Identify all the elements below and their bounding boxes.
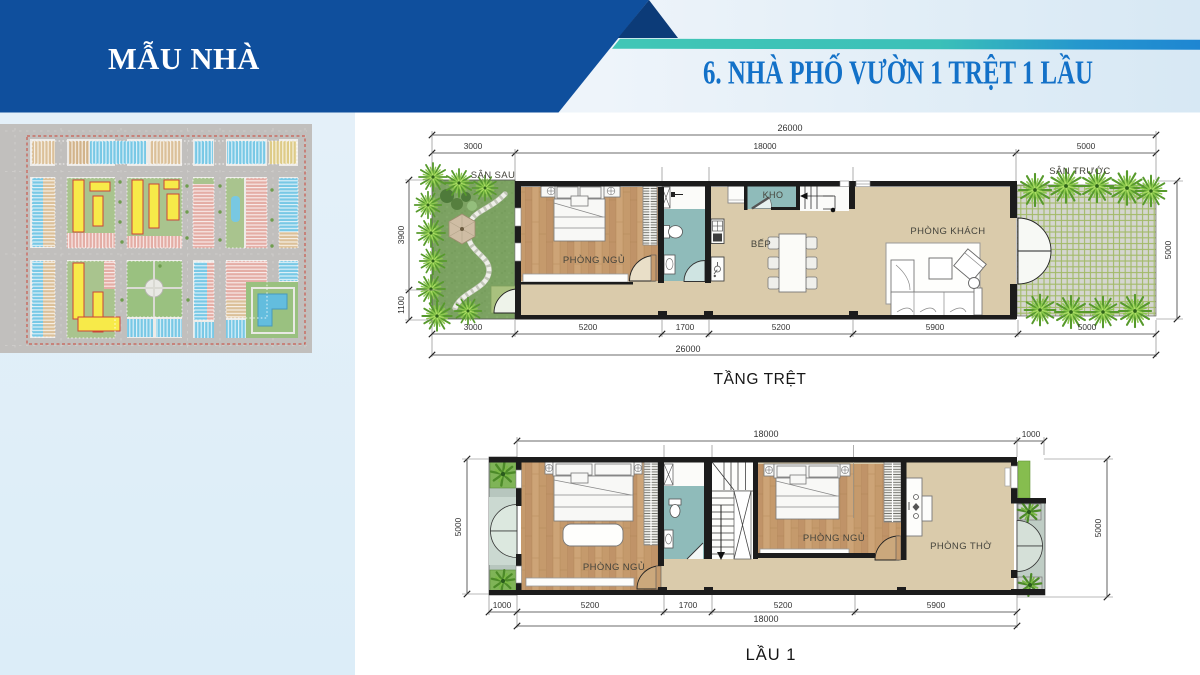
svg-text:1000: 1000 bbox=[1022, 429, 1041, 439]
svg-text:PHÒNG NGỦ: PHÒNG NGỦ bbox=[583, 561, 645, 573]
svg-text:PHÒNG THỜ: PHÒNG THỜ bbox=[930, 541, 992, 552]
svg-text:PHÒNG KHÁCH: PHÒNG KHÁCH bbox=[910, 226, 985, 237]
svg-text:1700: 1700 bbox=[676, 322, 695, 332]
svg-text:1700: 1700 bbox=[679, 600, 698, 610]
svg-text:PHÒNG NGỦ: PHÒNG NGỦ bbox=[563, 254, 625, 266]
svg-text:6. NHÀ PHỐ VƯỜN 1 TRỆT 1 LẦU: 6. NHÀ PHỐ VƯỜN 1 TRỆT 1 LẦU bbox=[703, 53, 1093, 92]
svg-text:3000: 3000 bbox=[464, 322, 483, 332]
svg-text:5200: 5200 bbox=[581, 600, 600, 610]
svg-text:3900: 3900 bbox=[396, 225, 406, 244]
svg-text:1000: 1000 bbox=[493, 600, 512, 610]
svg-text:5000: 5000 bbox=[1163, 240, 1173, 259]
svg-text:BẾP: BẾP bbox=[751, 239, 771, 250]
svg-text:5200: 5200 bbox=[579, 322, 598, 332]
svg-text:5200: 5200 bbox=[774, 600, 793, 610]
svg-text:5000: 5000 bbox=[453, 517, 463, 536]
svg-text:5900: 5900 bbox=[926, 322, 945, 332]
svg-text:TẦNG TRỆT: TẦNG TRỆT bbox=[714, 371, 807, 388]
svg-text:SÂN SAU: SÂN SAU bbox=[471, 170, 516, 181]
svg-text:KHO: KHO bbox=[763, 190, 784, 200]
svg-text:SÂN TRƯỚC: SÂN TRƯỚC bbox=[1049, 166, 1110, 177]
svg-text:18000: 18000 bbox=[753, 141, 776, 151]
svg-text:5000: 5000 bbox=[1093, 518, 1103, 537]
svg-text:26000: 26000 bbox=[777, 123, 802, 133]
svg-text:3000: 3000 bbox=[464, 141, 483, 151]
svg-text:MẪU NHÀ: MẪU NHÀ bbox=[108, 40, 260, 76]
svg-text:5000: 5000 bbox=[1078, 322, 1097, 332]
svg-text:18000: 18000 bbox=[753, 614, 778, 624]
svg-text:5900: 5900 bbox=[927, 600, 946, 610]
svg-text:LẦU 1: LẦU 1 bbox=[746, 645, 797, 664]
svg-text:5000: 5000 bbox=[1077, 141, 1096, 151]
svg-text:1100: 1100 bbox=[396, 296, 406, 314]
svg-text:PHÒNG NGỦ: PHÒNG NGỦ bbox=[803, 532, 865, 544]
svg-text:26000: 26000 bbox=[675, 344, 700, 354]
svg-text:5200: 5200 bbox=[772, 322, 791, 332]
svg-text:18000: 18000 bbox=[753, 429, 778, 439]
